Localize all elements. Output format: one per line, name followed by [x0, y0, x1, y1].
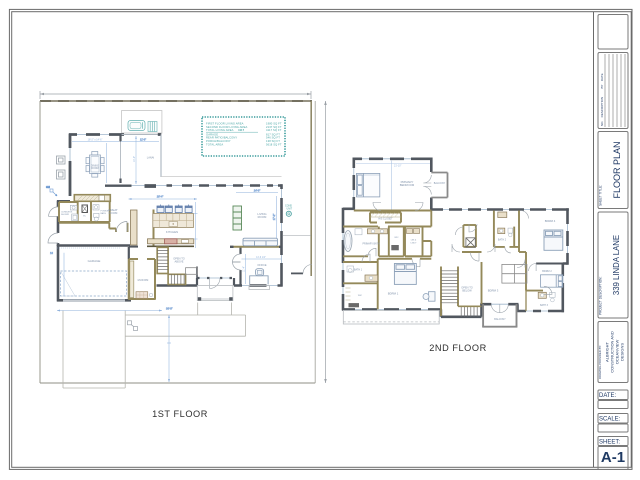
svg-text:339 LINDA LANE: 339 LINDA LANE: [612, 235, 621, 295]
svg-text:GM: GM: [46, 186, 50, 189]
svg-text:WIC: WIC: [394, 237, 399, 239]
svg-text:DESIGNS: DESIGNS: [620, 343, 625, 361]
svg-text:SHEET TITLE:: SHEET TITLE:: [599, 185, 603, 206]
svg-text:ROOM: ROOM: [109, 211, 118, 215]
svg-text:BDRM 4: BDRM 4: [545, 219, 556, 223]
svg-text:1ST FLOOR: 1ST FLOOR: [152, 409, 208, 419]
svg-text:UNIT: UNIT: [287, 207, 293, 210]
svg-text:4117: 4117: [238, 128, 245, 132]
svg-text:BEDROOM: BEDROOM: [400, 183, 415, 187]
svg-text:BATH 3: BATH 3: [540, 304, 549, 307]
svg-text:TOTAL AREA: TOTAL AREA: [206, 142, 223, 146]
svg-text:BDRM 2: BDRM 2: [542, 270, 552, 273]
svg-text:4117 SQ FT: 4117 SQ FT: [266, 128, 282, 132]
svg-text:NO. DESCRIPTION BY: NO. DESCRIPTION BY DATE: [600, 73, 604, 126]
svg-text:18'-2" x 14'-6": 18'-2" x 14'-6": [88, 138, 103, 141]
svg-text:DRAWING PROVIDED BY:: DRAWING PROVIDED BY:: [598, 345, 602, 379]
svg-text:LANAI: LANAI: [147, 156, 155, 160]
svg-text:BALCONY: BALCONY: [434, 182, 446, 185]
svg-text:OFFICE: OFFICE: [257, 264, 266, 267]
svg-text:21'-10": 21'-10": [394, 164, 402, 167]
svg-text:TOTAL LIVING AREA: TOTAL LIVING AREA: [206, 128, 234, 132]
svg-text:HIS CLOSET: HIS CLOSET: [378, 218, 393, 221]
svg-text:KITCHEN: KITCHEN: [166, 230, 178, 234]
svg-text:BALCONY: BALCONY: [494, 318, 506, 321]
svg-text:A-1: A-1: [601, 449, 625, 466]
svg-text:BDRM 3: BDRM 3: [488, 289, 499, 293]
svg-text:16'-4": 16'-4": [157, 195, 164, 199]
svg-text:PROJECT DESCRIPTION:: PROJECT DESCRIPTION:: [599, 277, 603, 315]
svg-text:14'-6": 14'-6": [254, 188, 261, 192]
svg-text:14'-0": 14'-0": [133, 156, 136, 162]
svg-text:11'-4": 11'-4": [244, 266, 246, 272]
svg-text:BELOW: BELOW: [462, 288, 472, 292]
svg-text:BATH 2: BATH 2: [498, 239, 507, 242]
svg-text:SCALE:: SCALE:: [599, 417, 621, 423]
svg-text:14'-6 1/2": 14'-6 1/2": [256, 257, 266, 259]
svg-text:12'-6": 12'-6": [140, 138, 146, 141]
svg-text:GARAGE: GARAGE: [88, 259, 101, 263]
svg-text:LNDY: LNDY: [411, 242, 417, 244]
svg-text:ABOVE: ABOVE: [175, 259, 184, 263]
svg-text:ROOM: ROOM: [91, 168, 98, 170]
svg-text:WIC: WIC: [358, 295, 363, 297]
svg-text:SHEET:: SHEET:: [599, 440, 620, 446]
svg-text:ROOM: ROOM: [258, 215, 267, 219]
svg-text:BATH: BATH: [101, 212, 107, 215]
svg-text:BDRM 1: BDRM 1: [388, 292, 399, 296]
svg-text:BATH 1: BATH 1: [354, 269, 363, 272]
svg-text:5618 SQ FT: 5618 SQ FT: [266, 142, 282, 146]
svg-text:36'-8": 36'-8": [166, 307, 173, 311]
svg-text:DINING: DINING: [91, 166, 99, 168]
svg-text:SHOWR: SHOWR: [61, 214, 69, 216]
svg-text:17'-2": 17'-2": [272, 214, 276, 221]
svg-text:LIN &: LIN &: [411, 240, 417, 242]
svg-text:DATE:: DATE:: [599, 393, 617, 399]
svg-text:2ND FLOOR: 2ND FLOOR: [429, 343, 487, 353]
svg-text:MUD RM: MUD RM: [138, 278, 149, 282]
svg-text:FLOOR PLAN: FLOOR PLAN: [612, 141, 622, 198]
svg-text:PRIMARY BATH: PRIMARY BATH: [363, 243, 380, 246]
